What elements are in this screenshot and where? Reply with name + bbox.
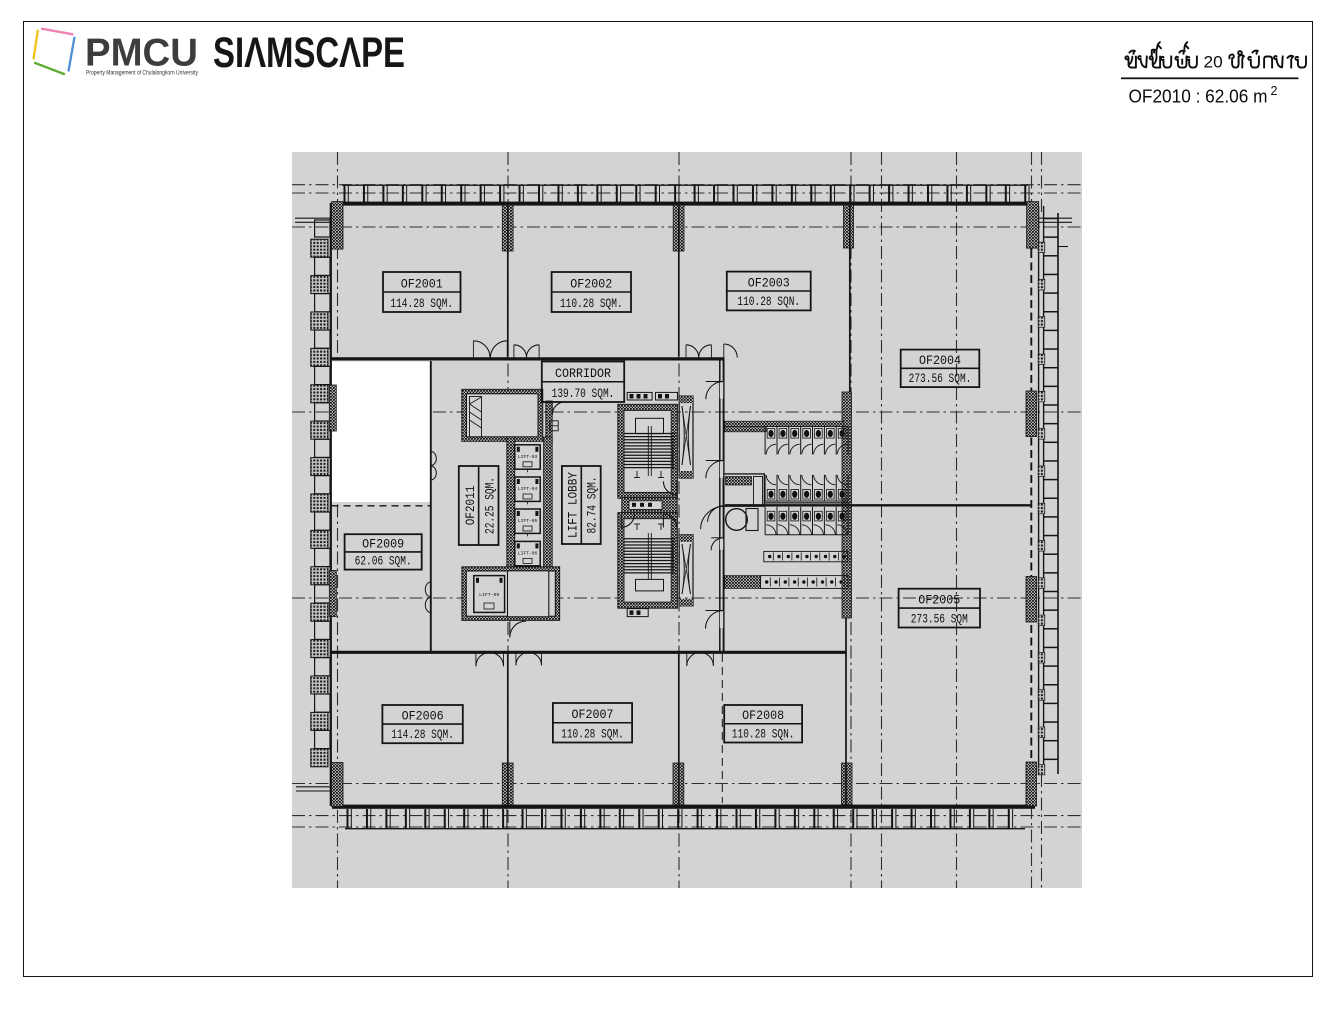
svg-text:LIFT-04: LIFT-04 bbox=[518, 486, 538, 492]
svg-text:62.06 SQM.: 62.06 SQM. bbox=[355, 554, 412, 568]
svg-text:139.70 SQM.: 139.70 SQM. bbox=[552, 387, 615, 401]
svg-text:OF2008: OF2008 bbox=[742, 709, 784, 723]
svg-text:OF2011: OF2011 bbox=[464, 486, 478, 526]
svg-text:22.25 SQM.: 22.25 SQM. bbox=[483, 477, 497, 534]
svg-text:LIFT-03: LIFT-03 bbox=[518, 454, 538, 460]
svg-text:110.28 SQM.: 110.28 SQM. bbox=[560, 297, 623, 311]
svg-text:114.28 SQM.: 114.28 SQM. bbox=[391, 728, 454, 742]
svg-text:110.28 SQN.: 110.28 SQN. bbox=[737, 295, 800, 309]
svg-text:LIFT LOBBY: LIFT LOBBY bbox=[567, 472, 581, 538]
svg-text:OF2009: OF2009 bbox=[362, 537, 404, 551]
svg-text:OF2003: OF2003 bbox=[748, 276, 790, 290]
svg-text:273.56 SQM: 273.56 SQM bbox=[911, 612, 968, 626]
svg-text:CORRIDOR: CORRIDOR bbox=[555, 367, 611, 381]
svg-text:OF2005: OF2005 bbox=[918, 594, 960, 608]
svg-text:LIFT-09: LIFT-09 bbox=[479, 592, 499, 598]
svg-text:OF2007: OF2007 bbox=[572, 708, 614, 722]
svg-text:OF2001: OF2001 bbox=[401, 277, 443, 291]
svg-text:110.28 SQM.: 110.28 SQM. bbox=[561, 727, 624, 741]
svg-text:LIFT-06: LIFT-06 bbox=[518, 550, 538, 556]
svg-text:114.28 SQM.: 114.28 SQM. bbox=[390, 297, 453, 311]
svg-text:82.74 SQM.: 82.74 SQM. bbox=[586, 477, 600, 534]
svg-text:LIFT-05: LIFT-05 bbox=[518, 518, 538, 524]
svg-text:273.56 SQM.: 273.56 SQM. bbox=[909, 372, 972, 386]
svg-text:OF2006: OF2006 bbox=[402, 710, 444, 724]
svg-text:OF2002: OF2002 bbox=[570, 277, 612, 291]
svg-text:110.28 SQN.: 110.28 SQN. bbox=[732, 727, 795, 741]
svg-text:OF2004: OF2004 bbox=[919, 354, 961, 368]
